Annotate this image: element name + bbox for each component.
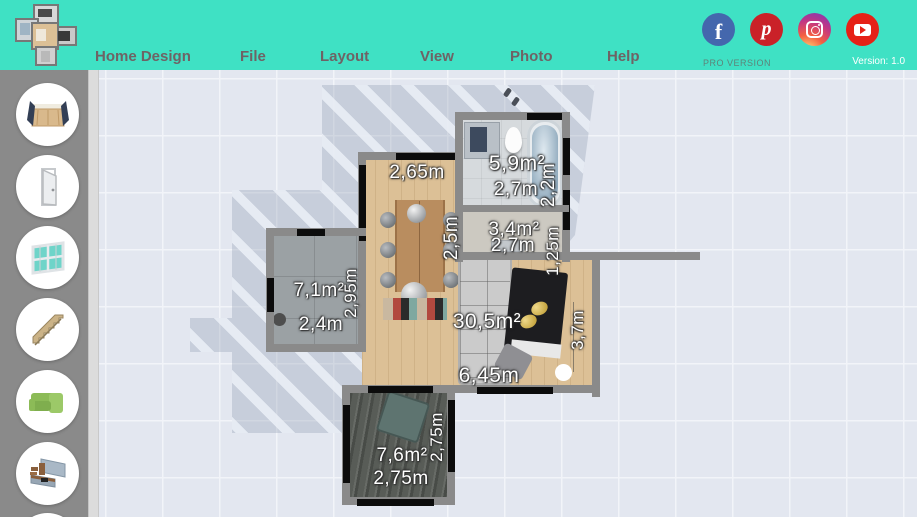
window-opening <box>343 405 350 483</box>
pinterest-icon[interactable]: p <box>750 13 783 46</box>
version-text: Version: 1.0 <box>852 56 905 67</box>
dim-bath-width: 2,7m <box>494 179 538 201</box>
window-opening <box>396 153 455 160</box>
toilet[interactable] <box>505 127 522 153</box>
menu-layout[interactable]: Layout <box>320 48 369 65</box>
dining-chair[interactable] <box>380 242 396 258</box>
window-opening <box>527 113 562 120</box>
tool-kitchen-button[interactable] <box>16 442 79 505</box>
window-opening <box>297 229 325 236</box>
storage-dot <box>273 313 286 326</box>
tool-room-button[interactable] <box>16 83 79 146</box>
tool-door-button[interactable] <box>16 155 79 218</box>
tool-sidebar <box>0 70 88 517</box>
dim-bath-area: 5,9m² <box>489 152 545 176</box>
window-opening <box>448 400 455 472</box>
door-swing-marker <box>555 364 572 381</box>
window-opening <box>357 499 434 506</box>
door-opening <box>368 386 433 393</box>
shower-mat <box>470 127 487 152</box>
striped-rug[interactable] <box>383 298 447 320</box>
wall <box>562 112 570 262</box>
window-opening <box>477 387 553 394</box>
menu-file[interactable]: File <box>240 48 266 65</box>
door-icon <box>25 164 71 210</box>
dim-dining-width: 2,65m <box>389 162 444 184</box>
dim-hall-height: 1,25m <box>543 226 563 276</box>
kitchen-icon <box>25 451 71 497</box>
youtube-icon[interactable] <box>846 13 879 46</box>
dim-bath-height: 2,2m <box>538 163 560 207</box>
instagram-icon[interactable] <box>798 13 831 46</box>
tool-more-button[interactable] <box>16 513 79 517</box>
play-icon <box>854 24 871 36</box>
sidebar-scrollbar[interactable] <box>88 70 99 517</box>
tool-sofa-button[interactable] <box>16 370 79 433</box>
tool-window-button[interactable] <box>16 226 79 289</box>
dim-bottom-area: 7,6m² <box>376 445 427 467</box>
room-icon <box>25 92 71 138</box>
pinterest-glyph: p <box>762 18 772 41</box>
dim-storage-width: 2,4m <box>299 314 343 336</box>
dining-chair[interactable] <box>380 272 396 288</box>
dim-bottom-width: 2,75m <box>373 468 428 490</box>
window-opening <box>563 138 570 175</box>
window-opening <box>267 278 274 312</box>
dim-dining-height: 2,5m <box>441 216 463 260</box>
menu-photo[interactable]: Photo <box>510 48 553 65</box>
dim-living-height: 3,7m <box>568 310 588 350</box>
app-window: Home Design File Layout View Photo Help … <box>0 0 917 517</box>
menu-view[interactable]: View <box>420 48 454 65</box>
tool-stairs-button[interactable] <box>16 298 79 361</box>
pro-version-text: PRO VERSION <box>703 58 771 68</box>
header-bar: Home Design File Layout View Photo Help … <box>0 0 917 70</box>
dim-hall-width: 2,7m <box>491 235 535 257</box>
dim-living-area: 30,5m² <box>453 310 521 334</box>
camera-icon <box>806 21 823 38</box>
app-logo[interactable] <box>14 3 78 67</box>
dim-storage-height: 2,95m <box>341 268 361 318</box>
sofa-icon <box>25 379 71 425</box>
dim-storage-area: 7,1m² <box>293 280 344 302</box>
menu-home-design[interactable]: Home Design <box>95 48 191 65</box>
floorplan-canvas[interactable]: 2,65m 2,5m 5,9m² 2,7m 2,2m 3,4m² 2,7m 1,… <box>99 70 917 517</box>
window-icon <box>25 235 71 281</box>
dining-chair[interactable] <box>443 272 459 288</box>
dining-chair[interactable] <box>380 212 396 228</box>
dim-bottom-height: 2,75m <box>427 412 447 462</box>
stairs-icon <box>25 307 71 353</box>
facebook-icon[interactable]: f <box>702 13 735 46</box>
wall <box>266 344 366 352</box>
facebook-glyph: f <box>715 19 722 45</box>
dim-living-width: 6,45m <box>459 364 520 388</box>
table-lamp[interactable] <box>407 204 426 223</box>
wall <box>592 252 600 397</box>
menu-help[interactable]: Help <box>607 48 640 65</box>
